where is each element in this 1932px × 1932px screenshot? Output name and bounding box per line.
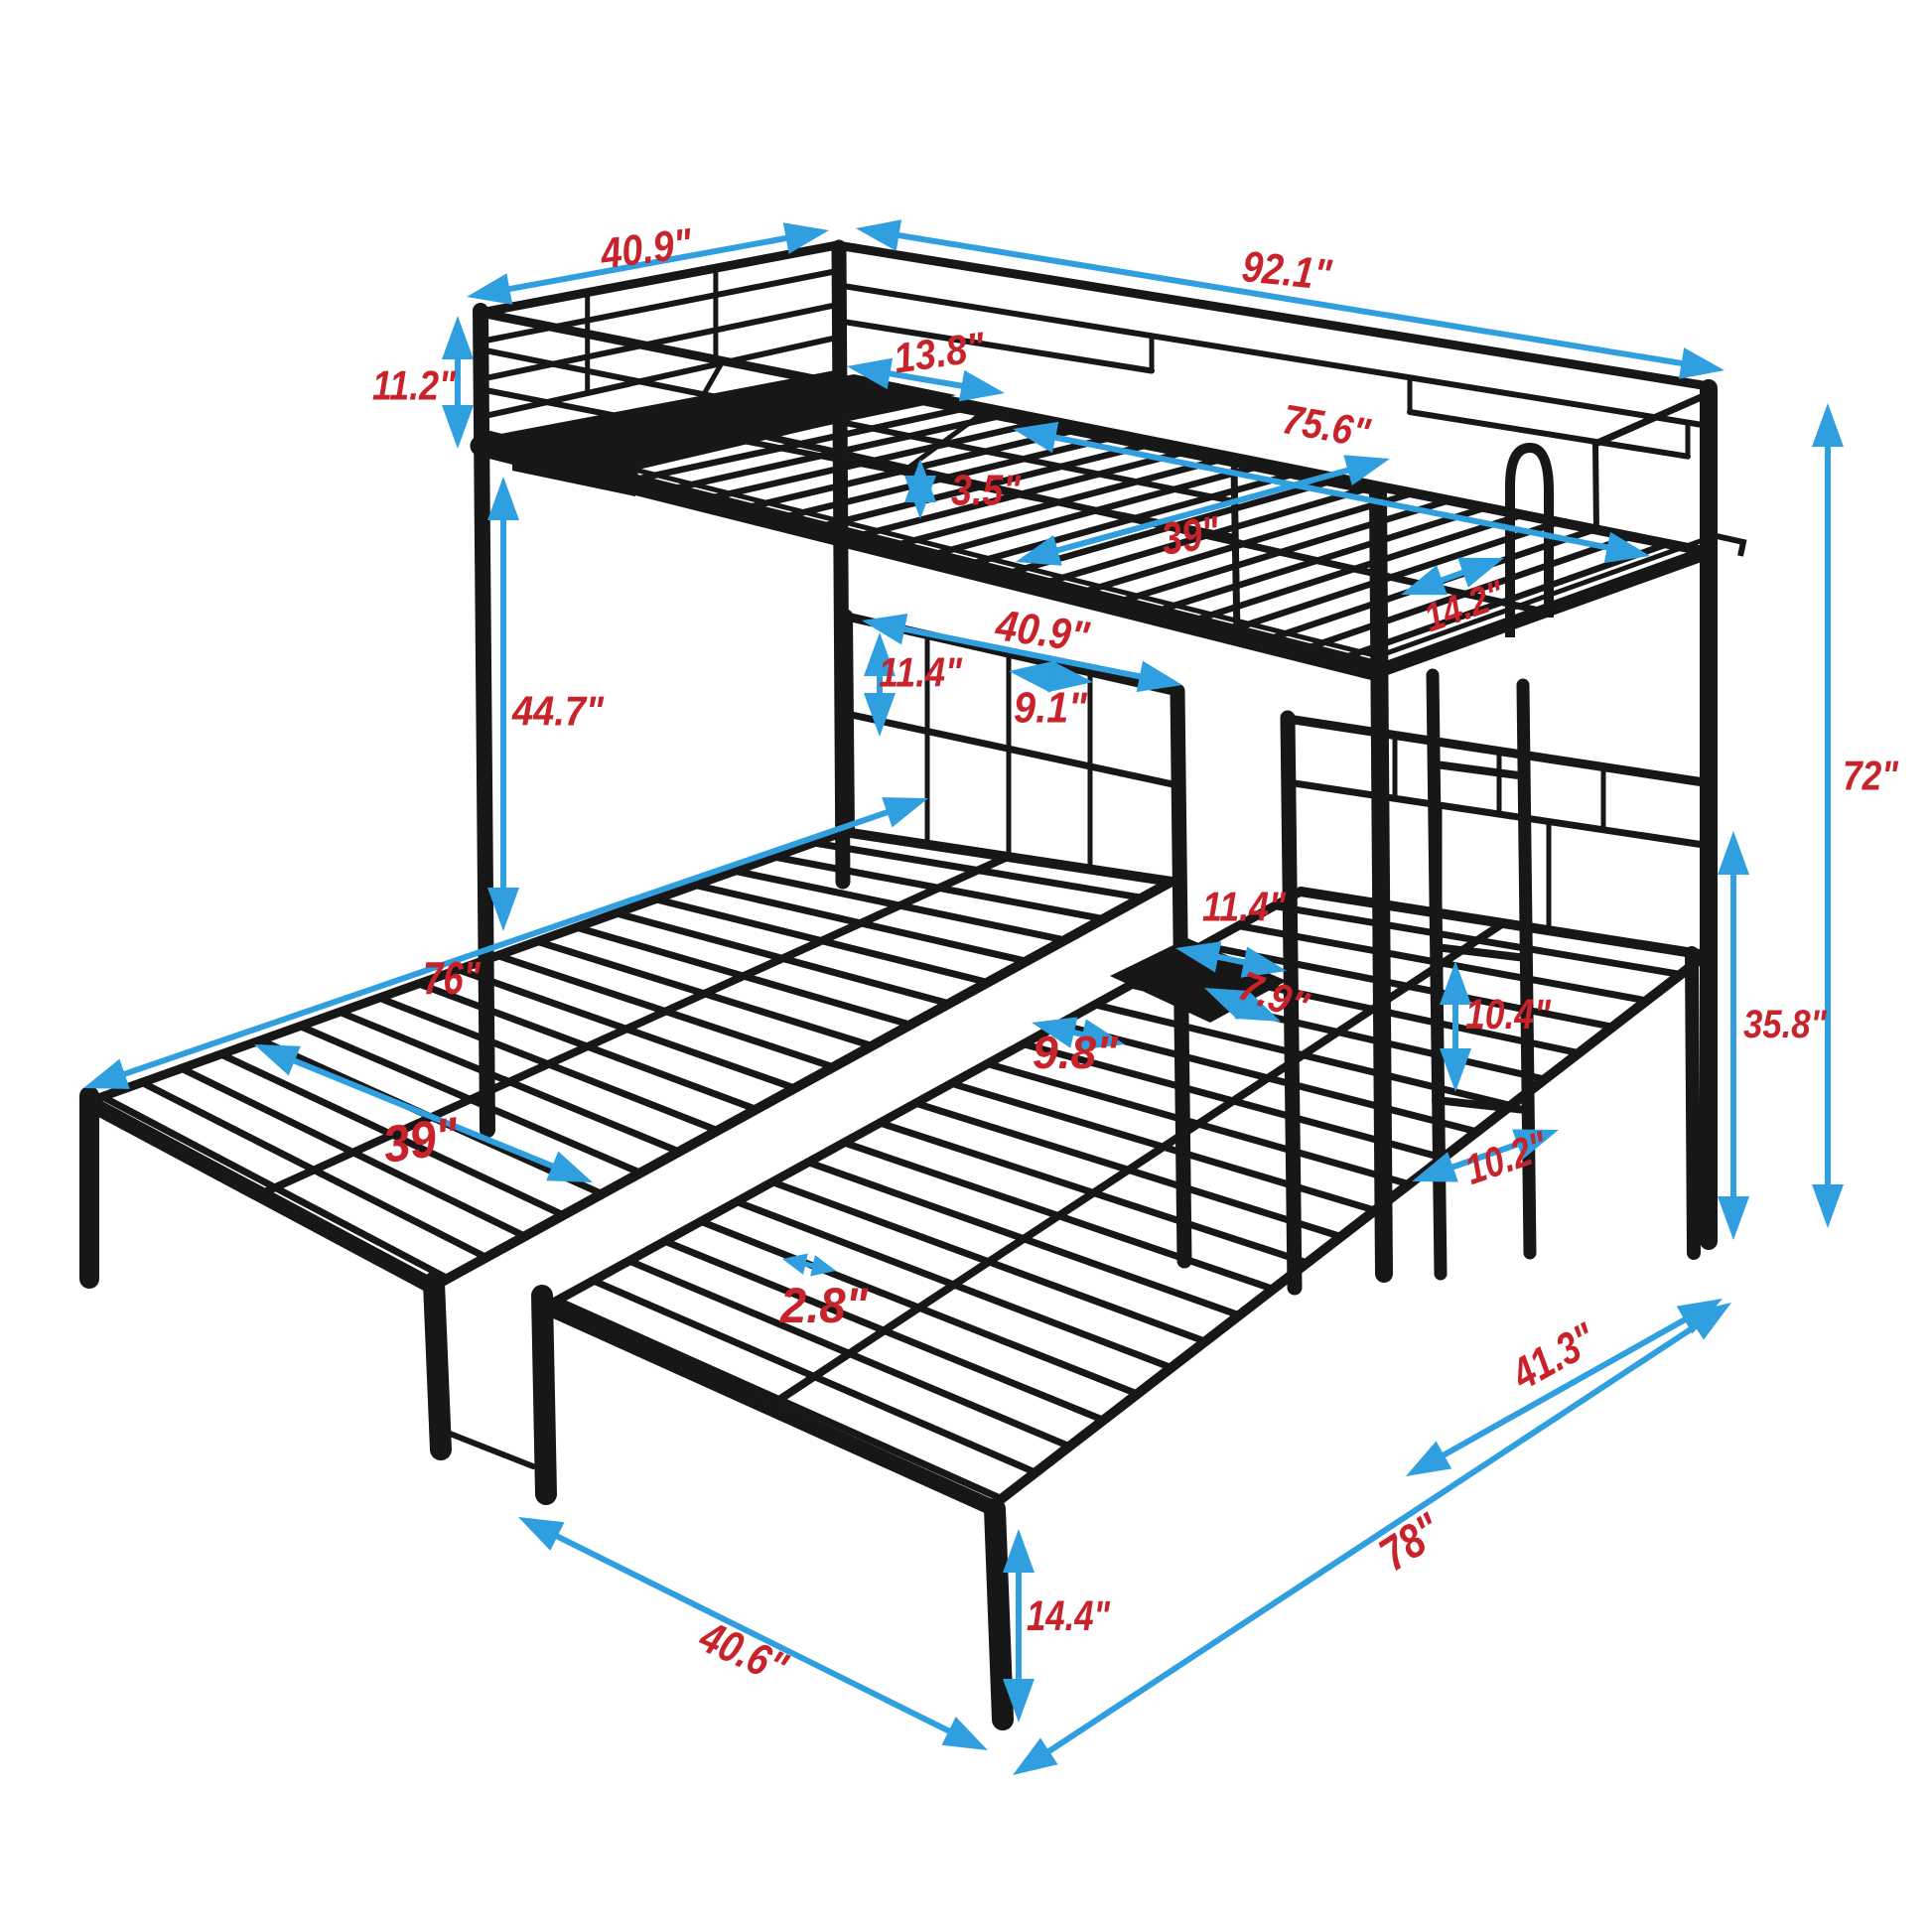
svg-text:9.1": 9.1" bbox=[1014, 684, 1088, 733]
svg-text:10.4": 10.4" bbox=[1465, 991, 1552, 1038]
svg-text:76": 76" bbox=[423, 952, 482, 1004]
svg-text:11.4": 11.4" bbox=[1202, 884, 1287, 930]
svg-text:2.8": 2.8" bbox=[779, 1278, 869, 1333]
svg-text:14.4": 14.4" bbox=[1027, 1592, 1110, 1640]
svg-text:11.4": 11.4" bbox=[879, 649, 963, 696]
svg-text:72": 72" bbox=[1843, 753, 1899, 799]
svg-text:3.5": 3.5" bbox=[951, 467, 1022, 515]
svg-text:9.8": 9.8" bbox=[1033, 1027, 1119, 1078]
svg-text:35.8": 35.8" bbox=[1743, 1003, 1828, 1046]
svg-text:44.7": 44.7" bbox=[511, 688, 605, 735]
svg-text:39": 39" bbox=[379, 1107, 464, 1174]
svg-text:92.1": 92.1" bbox=[1240, 242, 1335, 300]
svg-text:11.2": 11.2" bbox=[372, 362, 457, 409]
svg-text:39": 39" bbox=[1159, 505, 1224, 565]
